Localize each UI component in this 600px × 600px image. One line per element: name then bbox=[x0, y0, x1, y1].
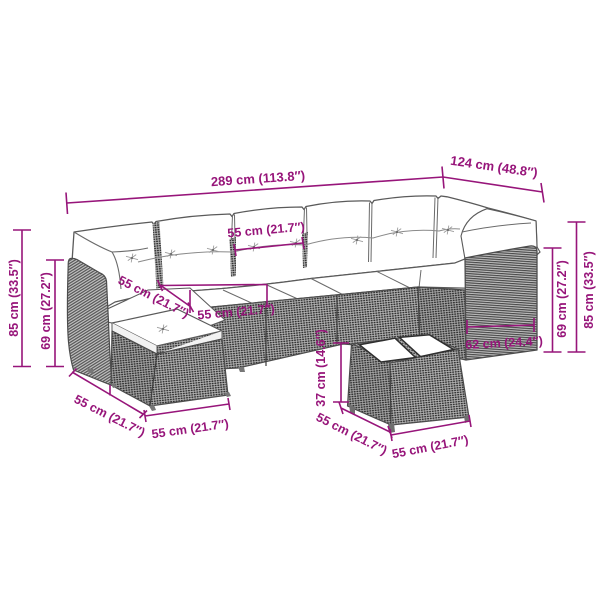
svg-text:85 cm (33.5″): 85 cm (33.5″) bbox=[7, 259, 21, 337]
svg-text:37 cm (14.6″): 37 cm (14.6″) bbox=[314, 329, 328, 407]
svg-text:85 cm (33.5″): 85 cm (33.5″) bbox=[582, 251, 596, 329]
svg-text:69 cm (27.2″): 69 cm (27.2″) bbox=[555, 260, 569, 338]
svg-text:69 cm (27.2″): 69 cm (27.2″) bbox=[39, 272, 53, 350]
